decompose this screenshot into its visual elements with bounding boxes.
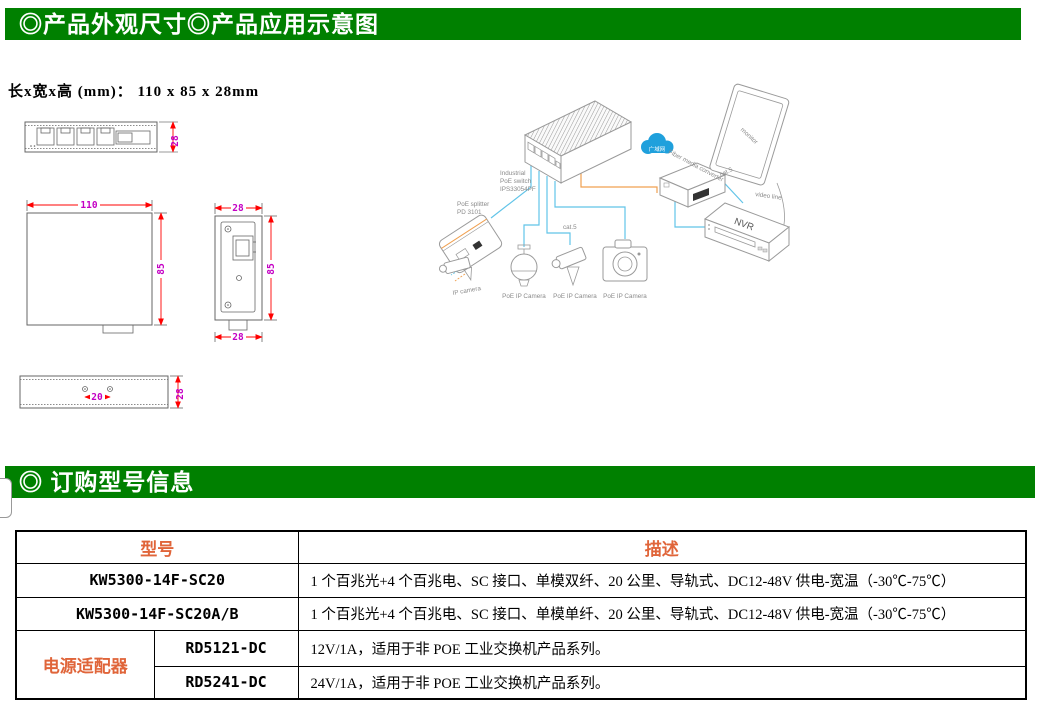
dimension-drawings: 28 110 85 28 bbox=[0, 110, 420, 430]
dim-front-height: 28 bbox=[170, 135, 181, 147]
poe-camera-label-1: PoE IP Camera bbox=[502, 293, 546, 300]
poe-camera-label-2: PoE IP Camera bbox=[553, 293, 597, 300]
cat5-label-cameras: cat.5 bbox=[563, 224, 577, 231]
side-view-drawing: 28 85 28 bbox=[215, 202, 277, 343]
order-table: 型号 描述 KW5300-14F-SC20 1 个百兆光+4 个百兆电、SC 接… bbox=[15, 530, 1027, 700]
ip-camera bbox=[438, 257, 474, 287]
dim-side-height: 85 bbox=[266, 263, 277, 275]
description-cell: 1 个百兆光+4 个百兆电、SC 接口、单模单纤、20 公里、导轨式、DC12-… bbox=[298, 597, 1026, 630]
poe-camera-label-3: PoE IP Camera bbox=[603, 293, 647, 300]
splitter-label-line1: PoE splitter bbox=[457, 201, 489, 208]
bottom-view-drawing: 20 28 bbox=[20, 376, 186, 408]
dimensions-text: 长x宽x高 (mm)： 110 x 85 x 28mm bbox=[8, 80, 259, 101]
dim-side-width-top: 28 bbox=[232, 203, 244, 214]
adapter-group-label: 电源适配器 bbox=[16, 630, 154, 699]
model-cell: RD5121-DC bbox=[154, 630, 298, 666]
description-cell: 1 个百兆光+4 个百兆电、SC 接口、单模双纤、20 公里、导轨式、DC12-… bbox=[298, 563, 1026, 597]
model-cell: KW5300-14F-SC20A/B bbox=[16, 597, 298, 630]
dome-camera bbox=[511, 245, 537, 286]
description-column-header: 描述 bbox=[298, 531, 1026, 563]
table-row: 电源适配器 RD5121-DC 12V/1A，适用于非 POE 工业交换机产品系… bbox=[16, 630, 1026, 666]
table-header-row: 型号 描述 bbox=[16, 531, 1026, 563]
nvr: NVR bbox=[705, 203, 789, 261]
description-cell: 24V/1A，适用于非 POE 工业交换机产品系列。 bbox=[298, 666, 1026, 699]
ip-camera-label: IP camera bbox=[452, 285, 482, 297]
dim-bottom-hole-span: 20 bbox=[91, 392, 103, 403]
video-line-label: video line bbox=[755, 191, 783, 202]
dim-top-height: 85 bbox=[156, 263, 167, 275]
poe-switch bbox=[525, 101, 631, 183]
switch-label-line3: IPS33054PF bbox=[500, 186, 536, 193]
switch-label-line2: PoE switch bbox=[500, 178, 532, 185]
wan-label: 广域网 bbox=[649, 145, 666, 153]
splitter-label-line2: PD 3101 bbox=[457, 209, 482, 216]
application-diagram: Industrial PoE switch IPS33054PF 广域网 Fib… bbox=[425, 75, 840, 325]
model-cell: RD5241-DC bbox=[154, 666, 298, 699]
dim-bottom-height: 28 bbox=[175, 388, 186, 400]
dim-side-width-bottom: 28 bbox=[232, 332, 244, 343]
box-camera bbox=[603, 240, 647, 281]
table-row: KW5300-14F-SC20 1 个百兆光+4 个百兆电、SC 接口、单模双纤… bbox=[16, 563, 1026, 597]
switch-label-line1: Industrial bbox=[500, 170, 526, 177]
datasheet-page: ◎产品外观尺寸◎产品应用示意图 长x宽x高 (mm)： 110 x 85 x 2… bbox=[0, 0, 1040, 703]
model-cell: KW5300-14F-SC20 bbox=[16, 563, 298, 597]
section-title-appearance: ◎产品外观尺寸◎产品应用示意图 bbox=[5, 8, 1021, 40]
table-row: KW5300-14F-SC20A/B 1 个百兆光+4 个百兆电、SC 接口、单… bbox=[16, 597, 1026, 630]
front-view-drawing: 28 bbox=[25, 122, 181, 152]
top-view-drawing: 110 85 bbox=[27, 199, 167, 333]
section-title-ordering: ◎ 订购型号信息 bbox=[5, 466, 1035, 498]
bullet-camera bbox=[550, 247, 586, 285]
side-panel-handle[interactable] bbox=[0, 478, 12, 518]
table-row: RD5241-DC 24V/1A，适用于非 POE 工业交换机产品系列。 bbox=[16, 666, 1026, 699]
description-cell: 12V/1A，适用于非 POE 工业交换机产品系列。 bbox=[298, 630, 1026, 666]
model-column-header: 型号 bbox=[16, 531, 298, 563]
dim-top-width: 110 bbox=[80, 200, 97, 211]
